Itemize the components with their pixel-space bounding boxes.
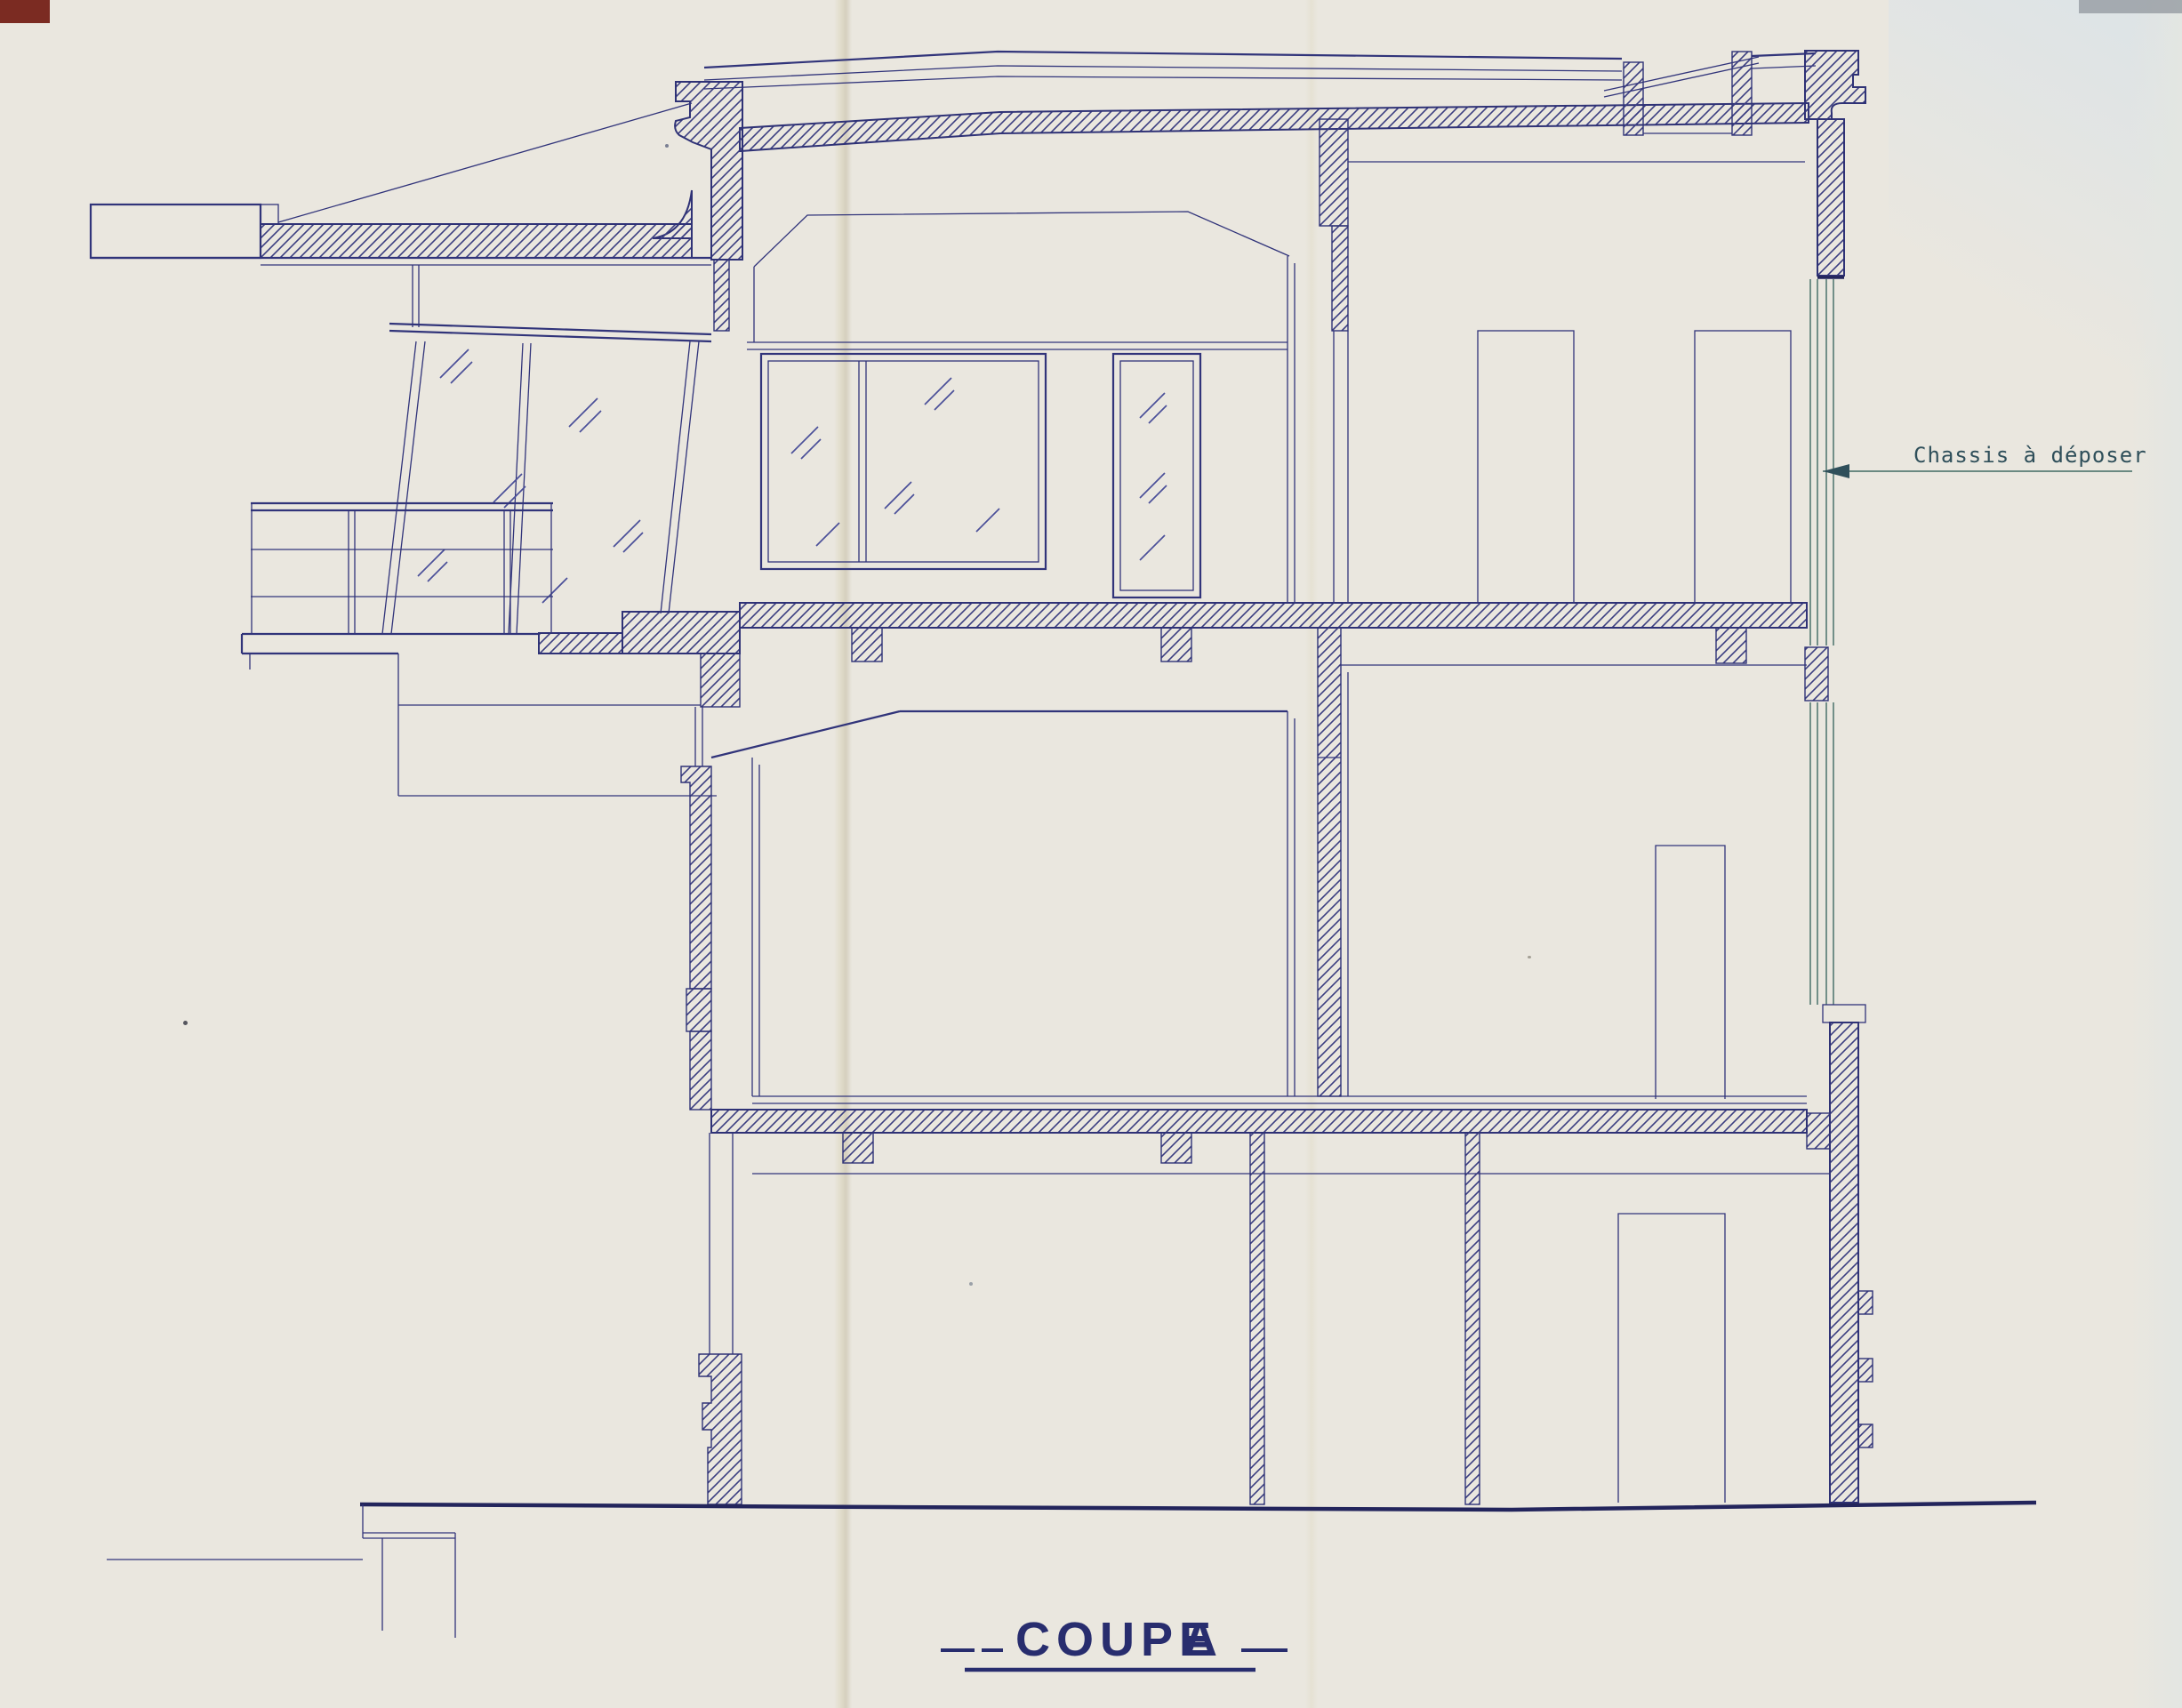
duct-opening — [1656, 846, 1725, 1099]
section-drawing: Chassis à déposer COUPE A — [0, 0, 2182, 1708]
beam — [1161, 628, 1191, 662]
slanted-bay-window — [382, 324, 711, 634]
ground-floor — [699, 1133, 1725, 1504]
ground-floor-slab — [711, 1096, 1830, 1174]
scanned-drawing-page: Chassis à déposer COUPE A — [0, 0, 2182, 1708]
right-wall-upper — [1817, 119, 1844, 276]
beam — [1716, 628, 1746, 663]
roof — [704, 51, 1865, 151]
beam — [843, 1133, 873, 1163]
annotation-chassis: Chassis à déposer — [1823, 443, 2147, 478]
door-opening — [1618, 1214, 1725, 1503]
beam — [852, 628, 882, 662]
drawing-title: COUPE A — [941, 1613, 1288, 1670]
left-canopy — [91, 82, 742, 331]
right-wall-lower — [1830, 1022, 1858, 1503]
cornice-outline — [754, 212, 1289, 267]
balcony-railing — [251, 503, 553, 634]
upper-left-room — [747, 212, 1295, 603]
interior-wall — [1318, 628, 1341, 1096]
chassis-window-frame — [1805, 279, 1833, 1005]
wall-notch — [1858, 1359, 1873, 1382]
upper-right-room — [1348, 162, 1805, 603]
transom-block — [1805, 647, 1828, 701]
upper-floor-slab — [740, 603, 1807, 663]
threshold — [622, 612, 740, 654]
partition-wall — [1250, 1133, 1264, 1504]
wall-cap — [1823, 1005, 1865, 1022]
upper-interior-wall — [1320, 119, 1348, 603]
title-word-a: A — [1183, 1613, 1223, 1666]
canopy-roof-slope — [278, 103, 692, 222]
first-floor — [681, 628, 1807, 1110]
wall-strip — [714, 260, 729, 331]
canopy-outer-slab — [91, 204, 261, 258]
wall-notch — [1858, 1424, 1873, 1447]
glass-marks — [418, 349, 643, 603]
roof-right-corbel — [1805, 51, 1865, 119]
ceiling-slope — [711, 711, 900, 758]
left-wall-plinth — [699, 1354, 742, 1504]
canopy-slab-hatch — [261, 224, 692, 258]
left-wall — [681, 766, 711, 989]
door-opening — [1695, 331, 1791, 603]
beam — [1161, 1133, 1191, 1163]
balcony-slab — [242, 612, 740, 796]
right-facade — [1805, 119, 1873, 1503]
door-opening — [1478, 331, 1574, 603]
balcony — [242, 503, 740, 796]
threshold-step — [539, 633, 622, 654]
wall-notch — [1858, 1291, 1873, 1314]
partition-wall — [1465, 1133, 1480, 1504]
roof-slab-hatch — [740, 103, 1809, 151]
annotation-text: Chassis à déposer — [1913, 443, 2147, 468]
window-a — [761, 354, 1046, 569]
window-b — [1113, 354, 1200, 597]
